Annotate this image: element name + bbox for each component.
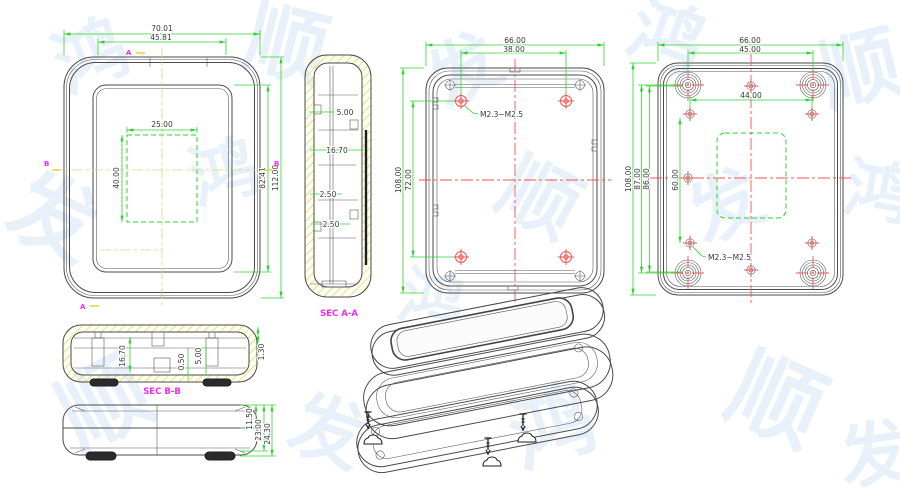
exploded-feet [364, 433, 536, 466]
dim-front-window-height: 40.00 [112, 167, 121, 189]
dim-side-2: 23.00 [254, 419, 263, 441]
front-view: 70.01 45.81 25.00 40.00 82.41 112.00 A A… [44, 24, 284, 311]
dim-secaa-3: 2.50 [320, 190, 337, 199]
section-marker-a-top: A [126, 49, 132, 57]
exploded-view [353, 284, 618, 477]
dim-secaa-4: 2.50 [323, 220, 340, 229]
side-foot-right [205, 452, 235, 460]
dim-secbb-4: 1.30 [257, 343, 266, 360]
dim-secbb-3: 5.00 [194, 347, 203, 364]
section-marker-b-right: B [274, 160, 279, 168]
dim-obv-overall-height: 108.00 [624, 166, 633, 192]
thread-note-obv: M2.3~M2.5 [708, 253, 751, 262]
secbb-foot-left [90, 379, 118, 386]
section-bb-label: SEC B-B [143, 387, 181, 397]
dim-ibv-boss-height: 72.00 [404, 169, 413, 191]
dim-obv-inner-height: 86.00 [642, 168, 651, 190]
section-aa-hatched-wall [305, 55, 371, 297]
dim-ibv-boss-width: 38.00 [503, 45, 525, 54]
dim-secbb-1: 16.70 [118, 345, 127, 367]
inner-back-view: 66.00 38.00 108.00 72.00 M2.3~M2.5 [394, 36, 611, 302]
section-marker-a-bottom: A [80, 303, 86, 311]
dim-front-window-width: 25.00 [151, 120, 173, 129]
section-aa-view: 5.00 16.70 2.50 2.50 SEC A-A [305, 55, 371, 319]
dim-secaa-1: 5.00 [337, 108, 354, 117]
dim-side-1: 11.50 [245, 408, 254, 430]
dim-obv-overall-width: 66.00 [739, 36, 761, 45]
cad-drawing-canvas: 70.01 45.81 25.00 40.00 82.41 112.00 A A… [0, 0, 900, 500]
dim-obv-foot-height: 87.00 [633, 168, 642, 190]
dim-ibv-overall-height: 108.00 [394, 167, 403, 193]
dim-obv-hole-height: 60.00 [671, 169, 680, 191]
section-aa-label: SEC A-A [320, 309, 358, 319]
side-view: 11.50 23.00 24.30 [63, 405, 276, 460]
section-marker-b-left: B [44, 160, 49, 168]
dim-side-3: 24.30 [263, 423, 272, 445]
dim-secaa-2: 16.70 [326, 146, 348, 155]
dim-secbb-2: 0.50 [177, 353, 186, 370]
thread-note-ibv: M2.3~M2.5 [480, 110, 523, 119]
side-foot-left [86, 452, 116, 460]
dim-front-overall-width: 70.01 [151, 24, 173, 33]
dim-obv-hole-width: 44.00 [740, 91, 762, 100]
label-recess-dashed [717, 133, 786, 218]
secbb-foot-right [203, 379, 231, 386]
section-bb-view: 16.70 0.50 5.00 1.30 SEC B-B [63, 325, 266, 397]
dim-front-overall-height: 112.00 [271, 165, 280, 191]
dim-obv-foot-width: 45.00 [739, 45, 761, 54]
outer-back-view: 66.00 45.00 44.00 60.00 108.00 87.00 86.… [624, 36, 851, 304]
dim-front-inner-width: 45.81 [150, 33, 172, 42]
dim-ibv-overall-width: 66.00 [504, 36, 526, 45]
